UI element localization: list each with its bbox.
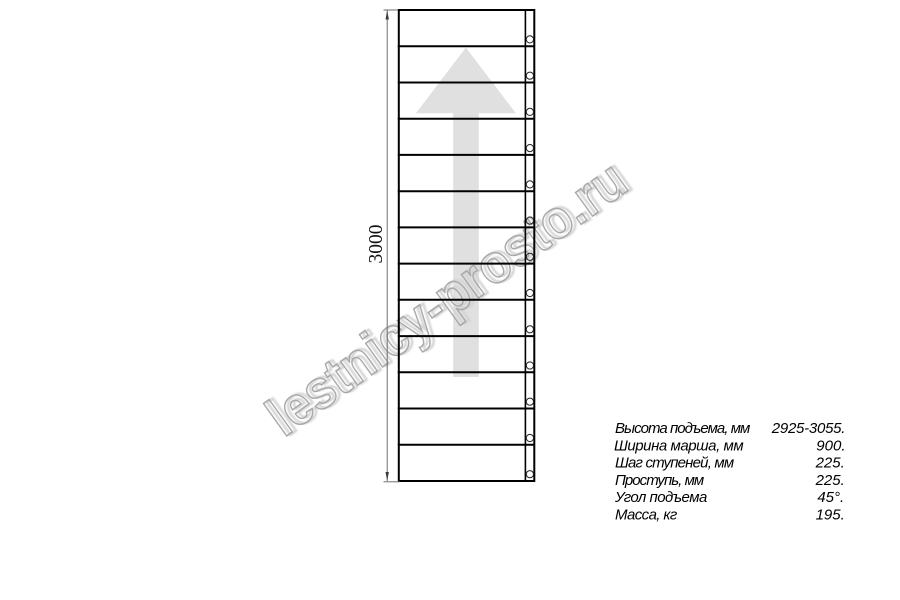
svg-text:45°.: 45°.	[817, 489, 844, 506]
svg-text:3000: 3000	[366, 225, 387, 264]
svg-text:lestnicy-prosto.ru: lestnicy-prosto.ru	[255, 149, 638, 448]
svg-text:Масса, кг: Масса, кг	[615, 507, 678, 524]
svg-text:2925-3055.: 2925-3055.	[771, 420, 845, 437]
svg-text:225.: 225.	[815, 472, 845, 489]
svg-text:195.: 195.	[816, 507, 845, 524]
svg-text:Ширина марша, мм: Ширина марша, мм	[614, 437, 743, 454]
svg-text:Шаг ступеней, мм: Шаг ступеней, мм	[615, 455, 734, 472]
svg-text:900.: 900.	[816, 437, 845, 454]
svg-text:225.: 225.	[815, 455, 845, 472]
svg-text:Проступь, мм: Проступь, мм	[615, 472, 704, 489]
svg-text:Высота подъема, мм: Высота подъема, мм	[615, 420, 750, 437]
svg-text:Угол подъема: Угол подъема	[614, 489, 707, 506]
